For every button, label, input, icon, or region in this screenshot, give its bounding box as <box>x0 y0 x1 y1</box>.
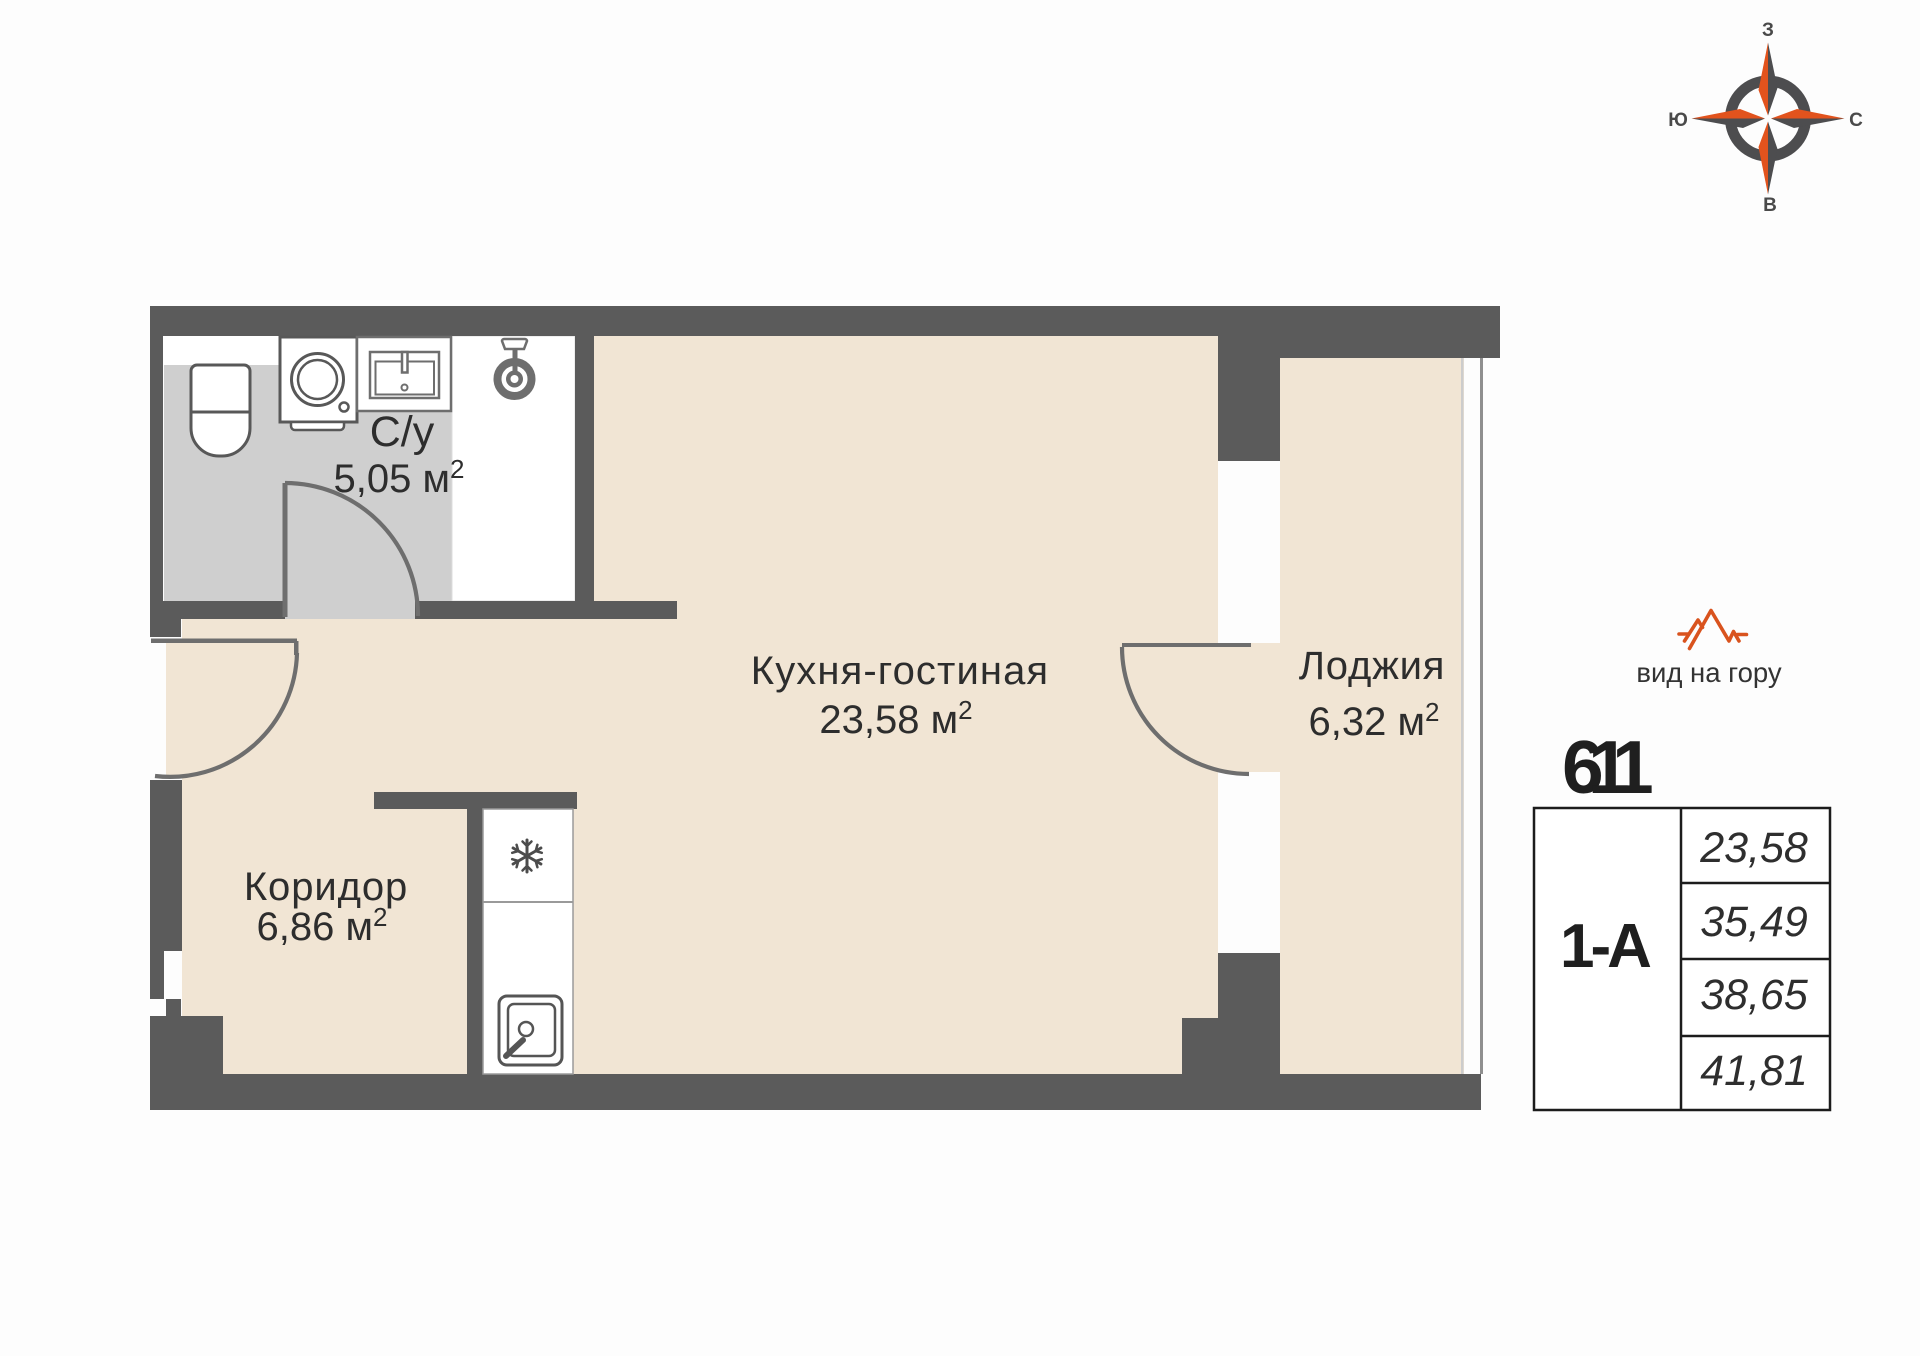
svg-text:41,81: 41,81 <box>1700 1047 1808 1095</box>
svg-text:С: С <box>1849 110 1863 131</box>
svg-text:611: 611 <box>1562 725 1654 809</box>
svg-text:Лоджия: Лоджия <box>1299 644 1446 688</box>
svg-text:Кухня-гостиная: Кухня-гостиная <box>751 649 1049 693</box>
svg-text:38,65: 38,65 <box>1700 971 1809 1019</box>
svg-text:З: З <box>1762 20 1774 41</box>
svg-text:6,86 м2: 6,86 м2 <box>257 902 388 949</box>
svg-text:23,58: 23,58 <box>1699 824 1808 872</box>
svg-text:С/у: С/у <box>370 408 435 456</box>
svg-text:6,32 м2: 6,32 м2 <box>1309 697 1440 744</box>
svg-text:вид на гору: вид на гору <box>1636 657 1781 688</box>
svg-text:35,49: 35,49 <box>1700 898 1808 946</box>
svg-text:1-А: 1-А <box>1560 912 1651 981</box>
svg-text:5,05 м2: 5,05 м2 <box>334 454 465 501</box>
svg-text:Ю: Ю <box>1668 110 1688 131</box>
svg-text:В: В <box>1763 195 1777 216</box>
svg-text:23,58 м2: 23,58 м2 <box>819 695 972 742</box>
